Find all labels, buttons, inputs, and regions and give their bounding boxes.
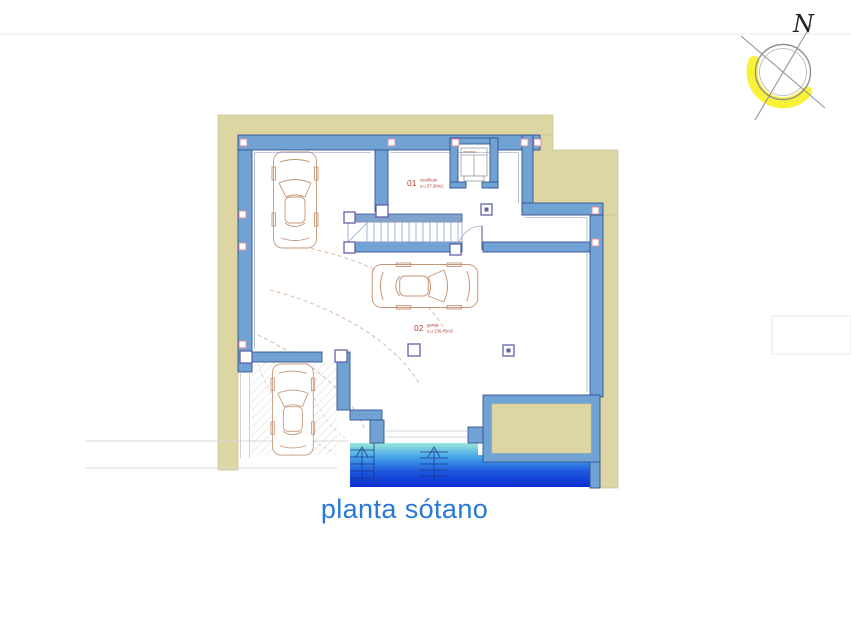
stair-treads bbox=[348, 222, 462, 242]
plan-title: planta sótano bbox=[297, 494, 512, 525]
drawing-sheet: ascensor 01 vestíbulo s.u 37,30m2 bbox=[0, 0, 851, 625]
room-number: 01 bbox=[407, 178, 417, 188]
room-label-garaje: 02 garaje s.u 136,45m2 bbox=[414, 323, 454, 334]
room-label-vestibulo: 01 vestíbulo s.u 37,30m2 bbox=[407, 178, 444, 189]
main-stair bbox=[348, 214, 462, 242]
car-icon bbox=[272, 152, 318, 248]
room-name: vestíbulo bbox=[420, 178, 438, 183]
room-name: garaje bbox=[427, 323, 440, 328]
floor-plan-drawing: ascensor 01 vestíbulo s.u 37,30m2 bbox=[0, 0, 851, 625]
elevator-label: ascensor bbox=[463, 150, 477, 154]
north-label: N bbox=[792, 10, 815, 38]
room-area: s.u 37,30m2 bbox=[420, 184, 444, 189]
room-area: s.u 136,45m2 bbox=[427, 329, 454, 334]
car-icon bbox=[271, 364, 315, 455]
storage-room bbox=[483, 395, 600, 462]
room-number: 02 bbox=[414, 323, 424, 333]
car-icon bbox=[372, 263, 478, 309]
compass-icon: N bbox=[741, 10, 825, 120]
